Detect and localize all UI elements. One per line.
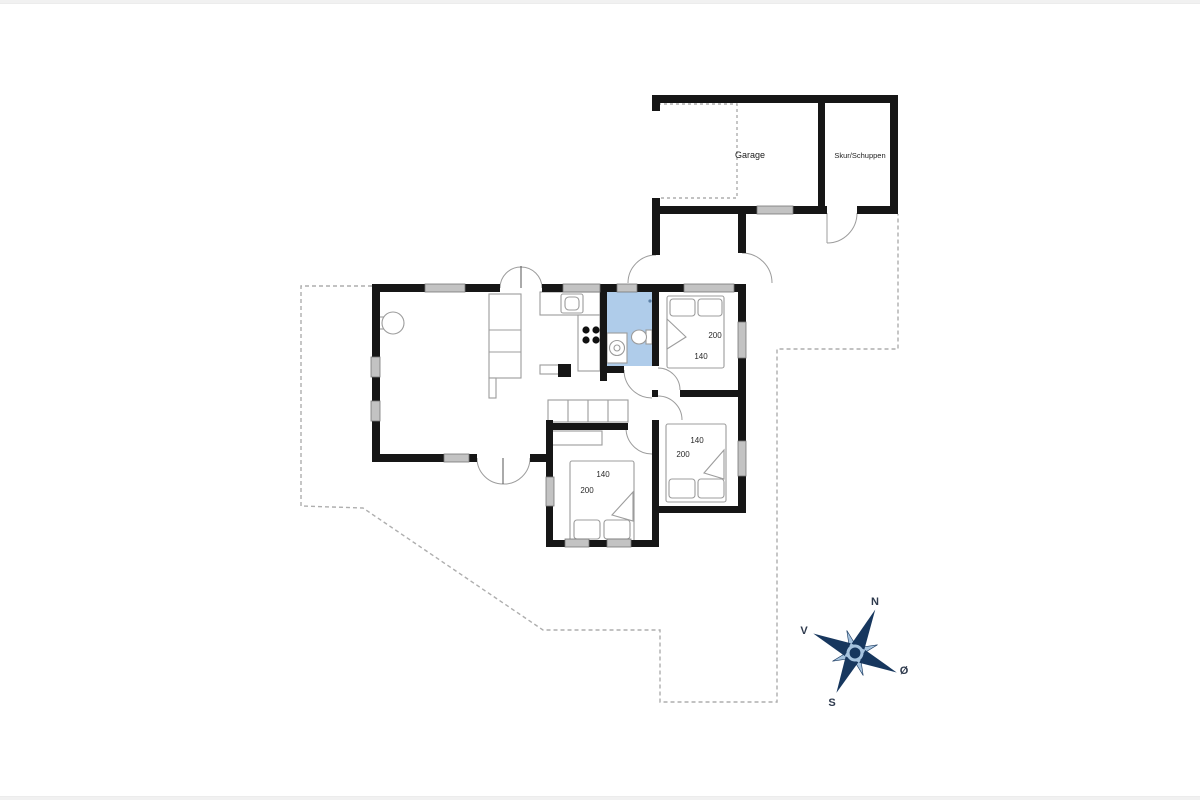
bookshelf-body — [489, 294, 521, 378]
wall-segment — [680, 390, 746, 397]
window — [371, 401, 380, 421]
door-swing — [500, 267, 521, 288]
shed-label: Skur/Schuppen — [834, 151, 885, 160]
wall-segment — [857, 206, 898, 214]
wall-segment — [546, 462, 553, 477]
compass-needle-north — [852, 607, 882, 650]
door-swing — [658, 368, 680, 390]
bookshelf-end — [489, 378, 496, 398]
pillow — [698, 479, 724, 498]
wall-segment — [549, 423, 628, 430]
door-swing — [626, 428, 652, 454]
door-swing — [742, 253, 772, 283]
wall-segment — [738, 292, 746, 322]
wall-segment — [372, 454, 444, 462]
wall-segment — [652, 214, 660, 255]
door-swing — [521, 267, 542, 288]
wall-segment — [600, 366, 624, 373]
fireplace-body — [382, 312, 404, 334]
pillow — [698, 299, 722, 316]
pillow — [669, 479, 695, 498]
bed-width-label: 140 — [690, 436, 704, 445]
kitchen-area — [540, 292, 600, 374]
pillow — [604, 520, 630, 539]
bed-width-label: 140 — [694, 352, 708, 361]
wall-segment — [793, 206, 827, 214]
door-swing — [477, 458, 503, 484]
carport-dashed-path — [658, 104, 737, 198]
compass-needle-south — [830, 656, 858, 695]
pillow — [670, 299, 695, 316]
compass-label-south: S — [828, 697, 835, 709]
window — [617, 284, 637, 292]
wardrobe — [552, 431, 602, 445]
compass-needle-west — [810, 627, 850, 656]
bed-length-label: 200 — [676, 450, 690, 459]
washbasin-drain — [614, 345, 620, 351]
wall-segment — [589, 540, 607, 547]
compass-rose: N V S Ø — [795, 590, 917, 712]
door-swing — [624, 370, 652, 398]
compass-label-west: V — [800, 625, 808, 637]
compass-needle-east — [859, 650, 899, 679]
wall-segment — [652, 506, 746, 513]
window — [444, 454, 469, 462]
window — [607, 539, 631, 547]
floor-plan: Garage Skur/Schuppen 200 140 140 200 140… — [0, 0, 1200, 800]
pillow — [574, 520, 600, 539]
wall-segment — [734, 284, 746, 292]
wall-segment — [372, 377, 380, 401]
wall-segment — [652, 95, 660, 111]
garage-label: Garage — [735, 150, 765, 160]
shower-icon — [648, 299, 651, 302]
wall-segment — [631, 540, 659, 547]
door-swing — [503, 458, 530, 484]
wall-segment — [652, 206, 757, 214]
window — [565, 539, 589, 547]
wall-segment — [469, 454, 477, 462]
sink-basin — [565, 297, 579, 310]
door-swing — [628, 255, 656, 283]
wall-segment — [372, 284, 380, 357]
window — [563, 284, 600, 292]
window — [371, 357, 380, 377]
window — [684, 284, 734, 292]
window — [546, 477, 554, 506]
closet-row — [548, 400, 628, 422]
wall-segment — [465, 284, 500, 292]
bed-width-label: 140 — [596, 470, 610, 479]
toilet-icon — [632, 330, 647, 344]
wall-segment — [546, 540, 565, 547]
wall-segment — [890, 95, 898, 214]
wall-segment — [637, 284, 684, 292]
kitchen-counter-return — [540, 365, 560, 374]
bed-length-label: 200 — [580, 486, 594, 495]
door-swing — [658, 396, 682, 420]
wall-segment — [652, 198, 660, 214]
window — [738, 441, 746, 476]
wall-segment — [558, 364, 571, 377]
window — [738, 322, 746, 358]
wall-segment — [652, 390, 658, 397]
wall-segment — [818, 99, 825, 206]
wall-segment — [652, 420, 659, 547]
wall-segment — [542, 284, 563, 292]
wall-segment — [652, 95, 898, 103]
wall-segment — [652, 284, 659, 366]
compass-label-north: N — [871, 596, 879, 608]
bookshelf — [489, 294, 521, 398]
floor-plan-page: Garage Skur/Schuppen 200 140 140 200 140… — [0, 0, 1200, 800]
wall-segment — [738, 214, 746, 253]
compass-label-east: Ø — [900, 665, 909, 677]
window — [425, 284, 465, 292]
wall-segment — [738, 358, 746, 441]
door-swing — [827, 213, 857, 243]
bed-length-label: 200 — [708, 331, 722, 340]
window — [757, 206, 793, 214]
